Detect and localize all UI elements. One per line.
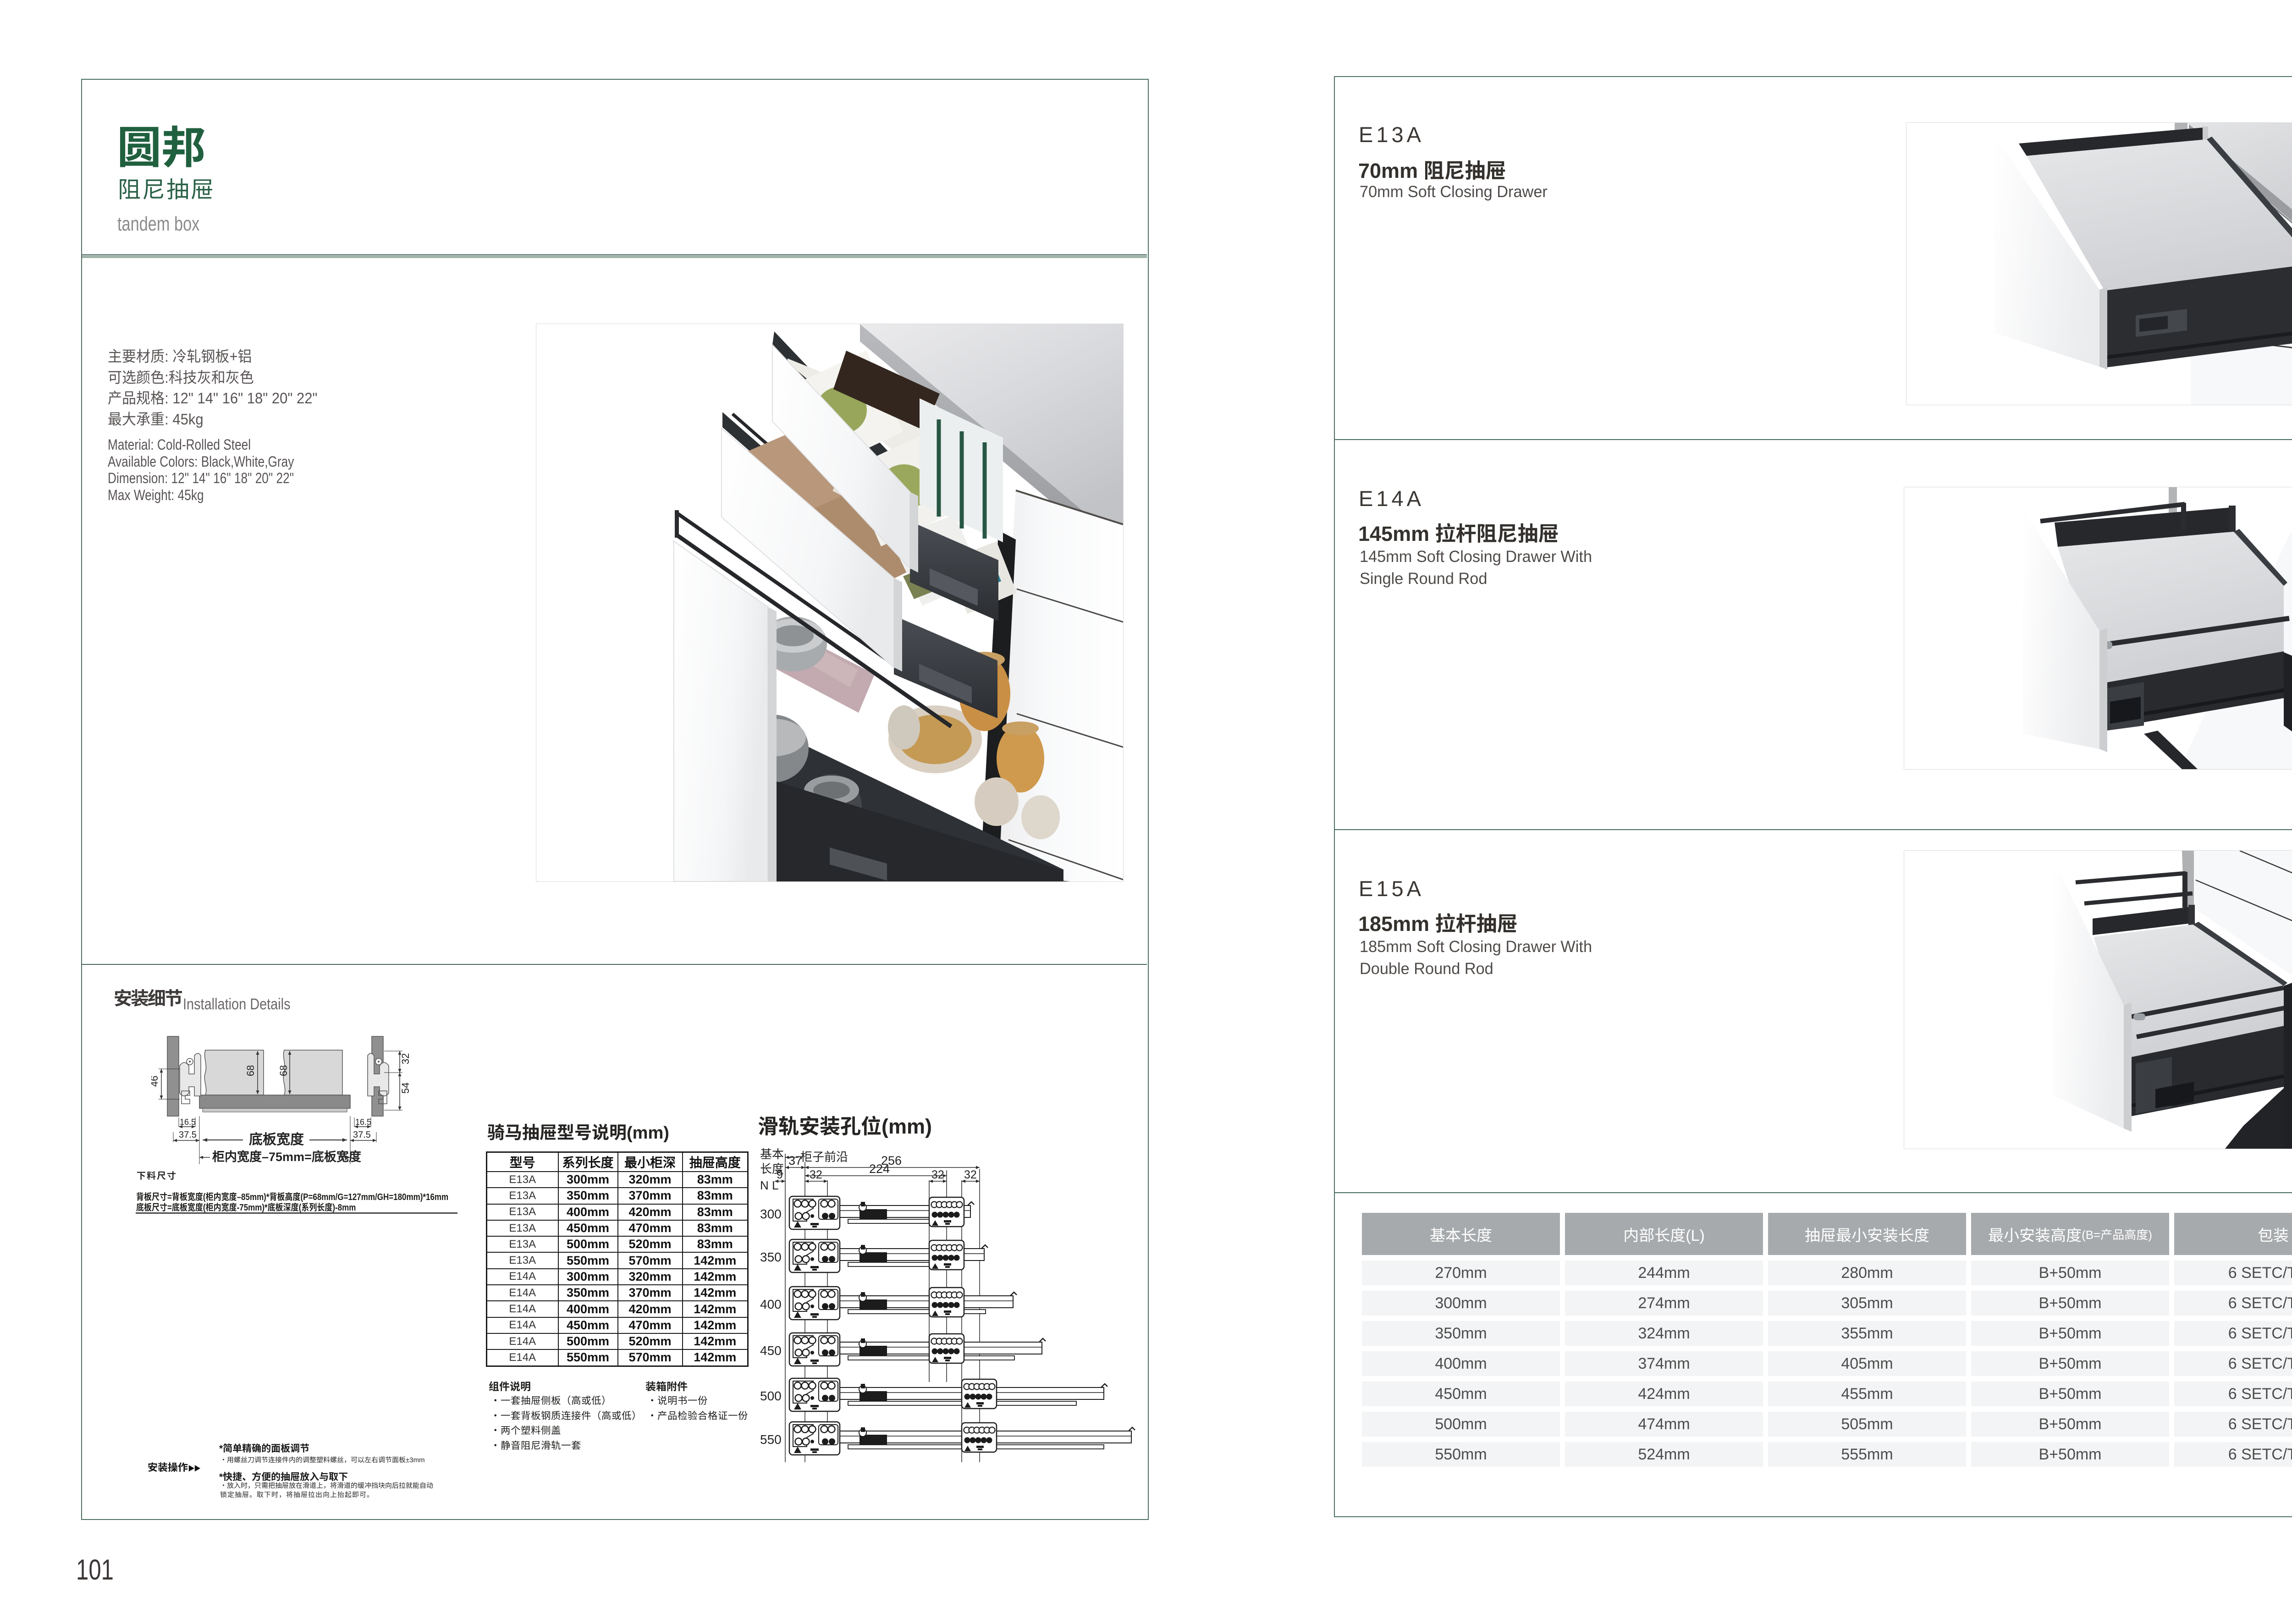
svg-text:32: 32 xyxy=(964,1168,977,1181)
svg-text:350: 350 xyxy=(760,1250,782,1264)
svg-text:柜子前沿: 柜子前沿 xyxy=(800,1150,848,1164)
svg-text:32: 32 xyxy=(810,1168,822,1181)
svg-text:柜内宽度–75mm=底板宽度: 柜内宽度–75mm=底板宽度 xyxy=(212,1150,361,1164)
svg-text:底板宽度: 底板宽度 xyxy=(249,1132,304,1147)
svg-text:500: 500 xyxy=(760,1389,782,1403)
svg-text:N L: N L xyxy=(760,1178,778,1192)
svg-text:46: 46 xyxy=(151,1076,160,1087)
svg-text:37.5: 37.5 xyxy=(353,1130,371,1140)
svg-text:68: 68 xyxy=(245,1065,256,1076)
svg-text:68: 68 xyxy=(278,1065,289,1076)
svg-text:450: 450 xyxy=(760,1343,782,1358)
svg-text:32: 32 xyxy=(931,1168,944,1181)
svg-text:32: 32 xyxy=(400,1053,411,1064)
svg-text:400: 400 xyxy=(760,1297,782,1311)
svg-text:37.5: 37.5 xyxy=(179,1130,197,1140)
svg-text:长度: 长度 xyxy=(760,1162,784,1176)
svg-text:550: 550 xyxy=(760,1432,782,1447)
svg-text:基本: 基本 xyxy=(760,1147,784,1161)
svg-text:54: 54 xyxy=(400,1083,411,1094)
svg-text:224: 224 xyxy=(869,1162,890,1176)
svg-text:300: 300 xyxy=(760,1207,782,1221)
